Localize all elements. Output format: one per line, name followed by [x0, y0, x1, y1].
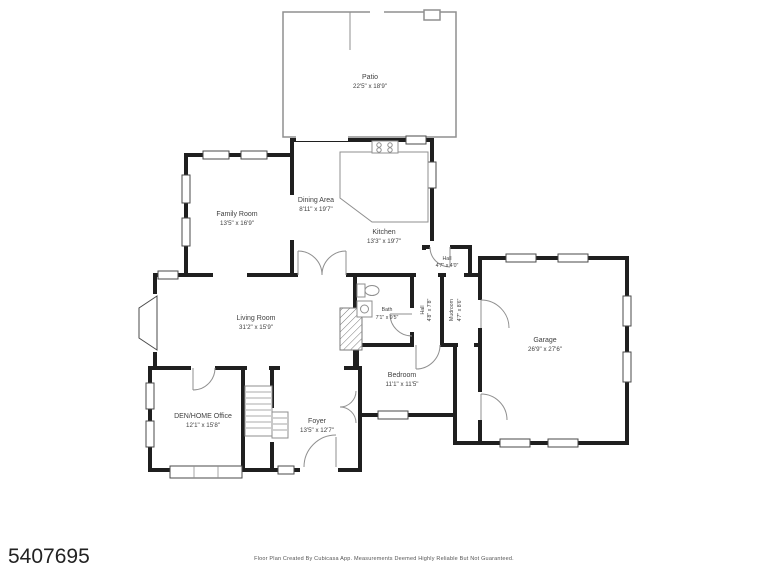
room-foyer-dims: 13'5" x 12'7": [300, 427, 334, 434]
vanity-counter: [357, 301, 372, 317]
window: [278, 466, 294, 474]
room-kitchen-dims: 13'3" x 19'7": [367, 238, 401, 245]
window: [146, 383, 154, 409]
window: [548, 439, 578, 447]
opening-hall-mudroom: [446, 269, 464, 281]
stove-body: [372, 141, 398, 153]
room-hall-top-label: Hall: [443, 256, 452, 262]
sink-vanity-fixture: [357, 301, 372, 317]
room-living-label: Living Room: [237, 315, 276, 322]
den-bay-window: [170, 466, 242, 478]
window: [623, 296, 631, 326]
toilet-tank: [357, 284, 365, 297]
floor-plan-drawing: Patio 22'5" x 18'9" Family Room 13'5" x …: [0, 0, 768, 576]
opening-hall-top-side: [416, 269, 438, 281]
opening-bath-door: [406, 308, 418, 332]
room-mudroom-dims: 4'7" x 8'6": [457, 299, 463, 322]
room-hall-side-label: Hall: [420, 306, 426, 315]
room-patio-dims: 22'5" x 18'9": [353, 83, 387, 90]
window: [558, 254, 588, 262]
room-bedroom-label: Bedroom: [388, 372, 417, 379]
opening-family-living: [213, 269, 247, 281]
opening-patio-kitchen: [296, 133, 348, 141]
toilet-fixture: [357, 284, 379, 297]
opening-back-door: [430, 241, 450, 253]
opening-rearhall-garage: [474, 392, 486, 420]
room-bedroom-dims: 11'1" x 11'5": [385, 381, 418, 388]
toilet-bowl: [365, 286, 379, 296]
window: [406, 136, 426, 144]
room-family-dims: 13'5" x 16'9": [220, 220, 254, 227]
window: [203, 151, 229, 159]
opening-mudroom-garage: [474, 300, 486, 328]
stove-icon: [372, 141, 398, 153]
opening-mudroom-rearhall: [458, 339, 474, 351]
opening-family-dining: [286, 195, 298, 240]
opening-den-door: [191, 362, 215, 374]
room-living-dims: 31'2" x 15'9": [239, 324, 273, 331]
room-bath-dims: 7'1" x 9'5": [376, 315, 399, 321]
room-hall-side-dims: 4'8" x 7'8": [427, 299, 433, 322]
window: [158, 271, 178, 279]
window: [146, 421, 154, 447]
room-foyer-label: Foyer: [308, 418, 327, 425]
patio-top-opening: [370, 8, 384, 16]
opening-living-stairs: [247, 362, 269, 374]
window: [378, 411, 408, 419]
room-kitchen-label: Kitchen: [372, 229, 395, 236]
room-family-label: Family Room: [216, 211, 257, 218]
room-bath-label: Bath: [382, 307, 393, 313]
window: [428, 162, 436, 188]
opening-bedroom-door: [414, 339, 440, 351]
living-bay-window: [139, 296, 157, 350]
room-bedroom-walls: [357, 345, 455, 415]
room-den-dims: 12'1" x 15'8": [186, 422, 220, 429]
room-mudroom-label: Mudroom: [449, 299, 455, 321]
room-den-label: DEN/HOME Office: [174, 413, 232, 420]
floor-plan-page: Patio 22'5" x 18'9" Family Room 13'5" x …: [0, 0, 768, 576]
room-dining-dims: 8'11" x 19'7": [299, 206, 332, 213]
opening-front-door: [300, 464, 338, 476]
stair-flight: [272, 412, 288, 438]
window: [500, 439, 530, 447]
room-dining-label: Dining Area: [298, 197, 334, 204]
window: [182, 175, 190, 203]
room-hall-top-dims: 4'7" x 4'0": [436, 263, 459, 269]
window: [182, 218, 190, 246]
opening-living-foyer: [280, 362, 344, 374]
room-garage-label: Garage: [533, 337, 556, 344]
window: [506, 254, 536, 262]
window: [241, 151, 267, 159]
window: [623, 352, 631, 382]
patio-chimney-box: [424, 10, 440, 20]
credit-line: Floor Plan Created By Cubicasa App. Meas…: [0, 556, 768, 562]
room-garage-dims: 26'9" x 27'6": [528, 346, 562, 353]
room-patio-label: Patio: [362, 74, 378, 81]
stair-flight: [245, 386, 272, 436]
